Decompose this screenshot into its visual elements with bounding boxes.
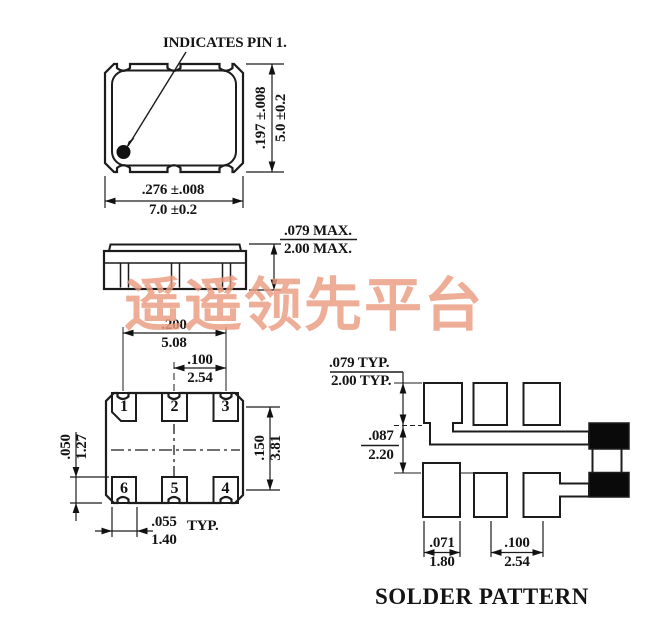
solder-pad-5 (474, 473, 507, 517)
pin1-leader-line (128, 52, 186, 146)
solder-pad-height-mm: 2.00 TYP. (331, 374, 391, 390)
side-view-height-mm: 2.00 MAX. (284, 242, 352, 258)
solder-pad-width-mm: 1.80 (417, 555, 467, 571)
solder-pattern-title: SOLDER PATTERN (375, 585, 589, 609)
solder-pattern-pads (423, 383, 629, 517)
pin-pitch-inch: .100 (175, 353, 225, 369)
solder-pitch-mm: 2.54 (492, 555, 542, 571)
solder-pad-3 (524, 383, 561, 425)
solder-pad-6 (423, 463, 460, 517)
solder-pattern-dimensions (330, 372, 543, 557)
side-view-height-inch: .079 MAX. (284, 224, 352, 240)
solder-pitch-inch: .100 (492, 536, 542, 552)
pad-height-mm: 1.27 (75, 422, 91, 472)
via-pad-lower (589, 473, 629, 498)
via-pad-upper (589, 423, 629, 449)
pin1-dot (117, 145, 131, 159)
solder-pad-4-with-trace (524, 473, 590, 517)
pin-number-3: 3 (213, 399, 238, 415)
watermark-text: 遥遥领先平台 (124, 276, 504, 334)
top-view-width-inch: .276 ±.008 (108, 183, 238, 199)
pad-width-mm: 1.40 (139, 533, 189, 549)
technical-drawing-page: INDICATES PIN 1. .197 ±.008 5.0 ±0.2 .27… (0, 0, 671, 641)
typ-label: TYP. (187, 519, 219, 535)
solder-gap-mm: 2.20 (361, 448, 401, 464)
top-view-outline (105, 52, 243, 172)
pad-width-inch: .055 (139, 515, 189, 531)
pin1-indicator-label: INDICATES PIN 1. (163, 36, 287, 52)
top-view-width-mm: 7.0 ±0.2 (108, 203, 238, 219)
pin-number-6: 6 (112, 481, 136, 497)
pin-number-1: 1 (112, 399, 136, 415)
row-spacing-mm: 3.81 (269, 423, 285, 473)
solder-pad-height-inch: .079 TYP. (329, 356, 389, 372)
top-view-height-inch: .197 ±.008 (254, 73, 270, 163)
pin-number-4: 4 (213, 481, 238, 497)
row-spacing-inch: .150 (253, 423, 269, 473)
pin-number-5: 5 (162, 481, 187, 497)
pin-pitch-mm: 2.54 (175, 371, 225, 387)
pad-height-inch: .050 (59, 422, 75, 472)
solder-gap-inch: .087 (361, 429, 401, 445)
top-view-height-mm: 5.0 ±0.2 (274, 73, 290, 163)
solder-pad-width-inch: .071 (417, 536, 467, 552)
solder-pad-2 (474, 383, 508, 425)
pin-number-2: 2 (162, 399, 187, 415)
